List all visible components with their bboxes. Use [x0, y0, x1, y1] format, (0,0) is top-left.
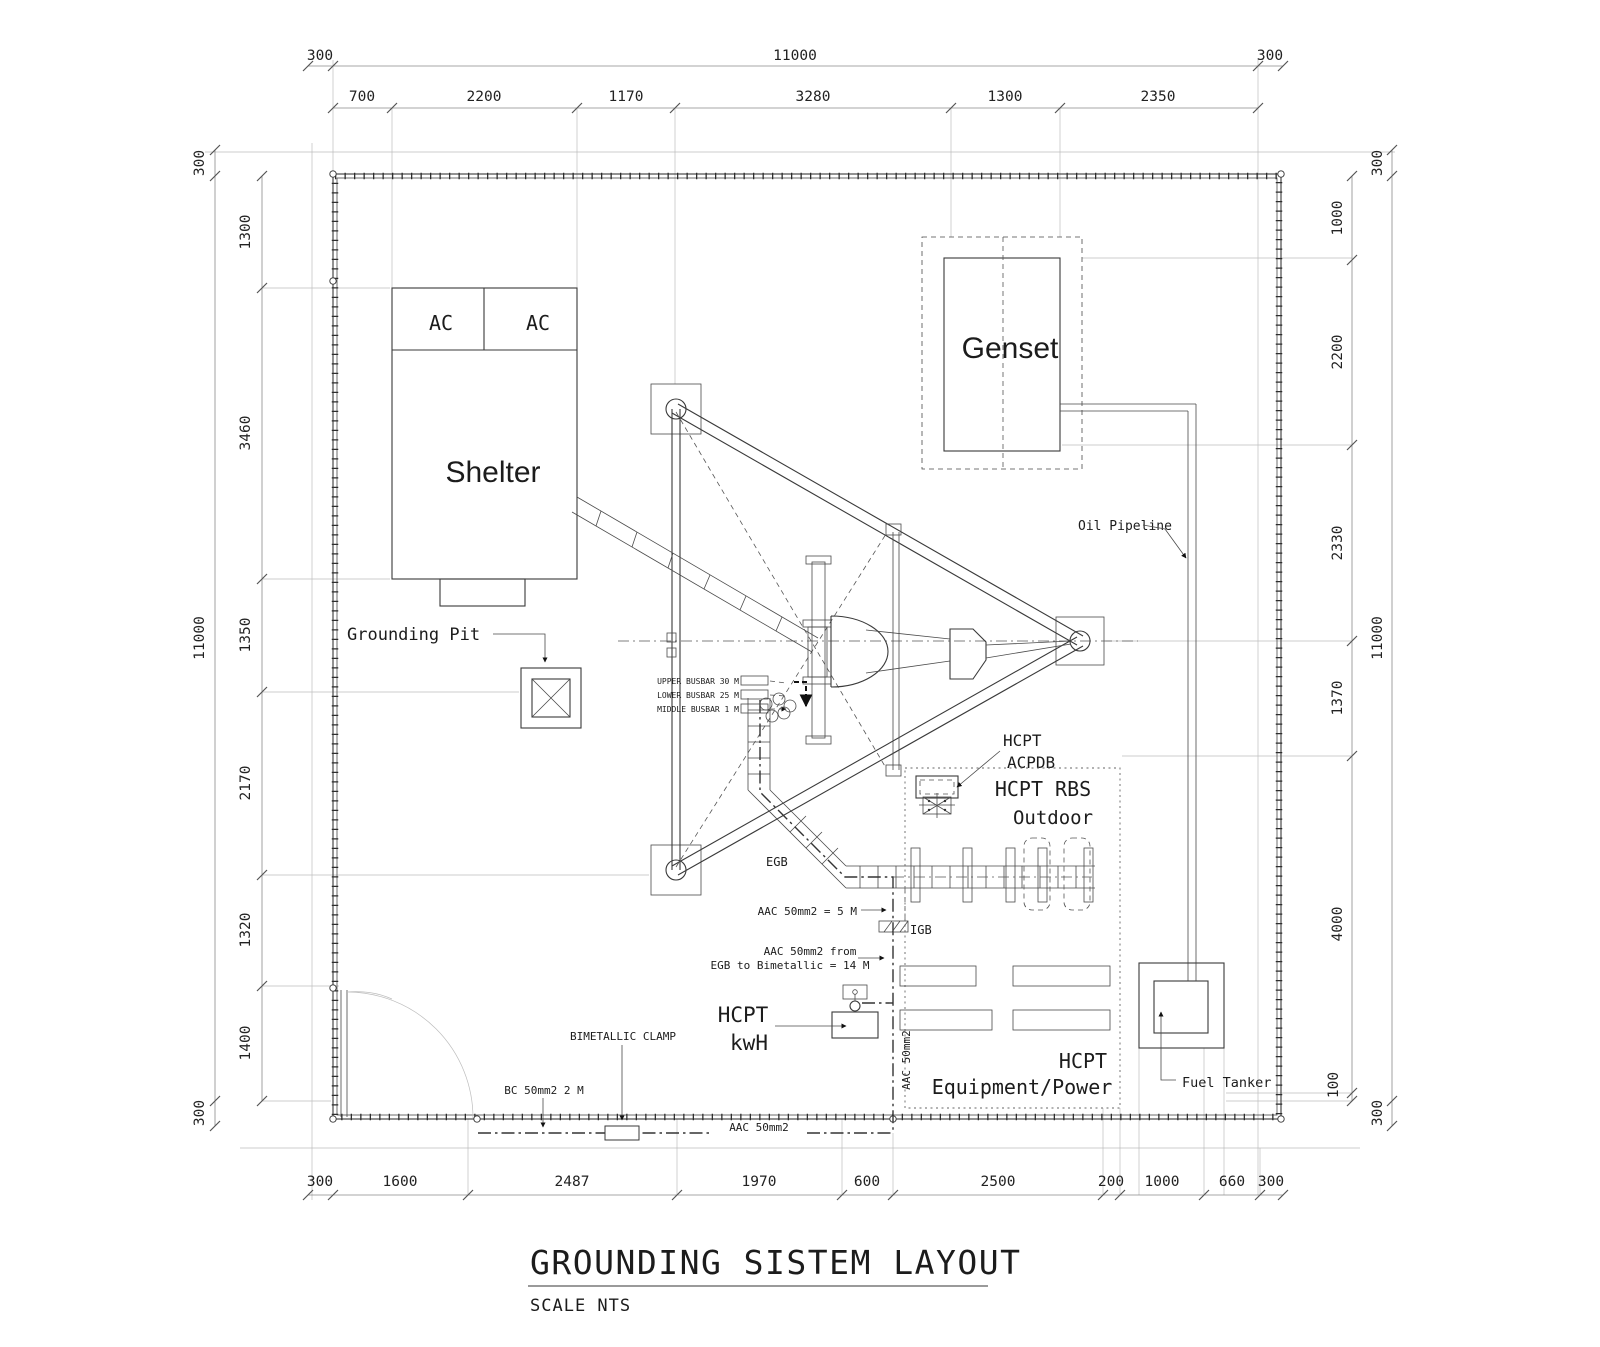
busbar-lower-label: LOWER BUSBAR 25 M	[657, 691, 739, 700]
dim-right-inner-2: 2200	[1330, 335, 1346, 370]
dim-top-outer-2: 11000	[773, 48, 817, 64]
dim-right-outer-2: 11000	[1370, 616, 1386, 660]
oil-pipeline-label: Oil Pipeline	[1078, 519, 1172, 534]
kwh-label-line2: kwH	[730, 1031, 768, 1055]
dim-bottom-6: 2500	[981, 1174, 1016, 1190]
busbar-upper-label: UPPER BUSBAR 30 M	[657, 677, 739, 686]
dim-bottom-9: 660	[1219, 1174, 1245, 1190]
genset-label: Genset	[962, 332, 1059, 365]
dim-bottom-3: 2487	[555, 1174, 590, 1190]
dim-right-inner-1: 1000	[1330, 201, 1346, 236]
shelter-label: Shelter	[445, 456, 540, 489]
diagonal-cable-ladder	[572, 497, 818, 652]
dim-top-outer-3: 300	[1257, 48, 1283, 64]
cable-cleats	[760, 693, 796, 722]
dim-top-inner-3: 1170	[609, 89, 644, 105]
drawing-title: GROUNDING SISTEM LAYOUT	[530, 1243, 1021, 1282]
egb-label: EGB	[766, 855, 788, 869]
aac-from-note-line2: EGB to Bimetallic = 14 M	[711, 959, 870, 972]
fence-posts	[330, 171, 1284, 1122]
dim-top-inner-6: 2350	[1141, 89, 1176, 105]
rbs-label-line1: HCPT RBS	[995, 777, 1091, 801]
dim-right-inner-5: 4000	[1330, 907, 1346, 942]
title-block: GROUNDING SISTEM LAYOUT SCALE NTS	[528, 1243, 1021, 1316]
acpdb-label-line2: ACPDB	[1007, 753, 1055, 772]
dim-top-inner-2: 2200	[467, 89, 502, 105]
dim-left-inner-6: 1400	[238, 1026, 254, 1061]
dim-right-inner-6: 100	[1326, 1072, 1342, 1098]
kwh-label-line1: HCPT	[718, 1003, 769, 1027]
dim-bottom-1: 300	[307, 1174, 333, 1190]
cable-ladders	[572, 497, 1095, 910]
tower-inner-frame	[806, 524, 901, 776]
vertical-cable-ladder	[748, 698, 846, 888]
dim-bottom-5: 600	[854, 1174, 880, 1190]
dim-top-inner-4: 3280	[796, 89, 831, 105]
dim-right-inner-3: 2330	[1330, 526, 1346, 561]
grounding-pit: Grounding Pit	[347, 625, 581, 728]
equipment-label-line2: Equipment/Power	[932, 1075, 1113, 1099]
oil-pipeline: Oil Pipeline	[1060, 404, 1196, 981]
rbs-label-line2: Outdoor	[1013, 807, 1093, 829]
dim-bottom-8: 1000	[1145, 1174, 1180, 1190]
equipment-plinths	[900, 966, 1110, 1030]
dim-bottom-7: 200	[1098, 1174, 1124, 1190]
dim-right-outer-1: 300	[1370, 150, 1386, 176]
shelter-building: AC AC Shelter	[392, 288, 577, 606]
dim-bottom-4: 1970	[742, 1174, 777, 1190]
dim-right-inner-4: 1370	[1330, 681, 1346, 716]
ac-unit-left-label: AC	[429, 311, 453, 335]
busbar-callouts: UPPER BUSBAR 30 M LOWER BUSBAR 25 M MIDD…	[657, 676, 796, 722]
igb-label: IGB	[910, 923, 932, 937]
fuel-tanker: Fuel Tanker	[1139, 963, 1271, 1091]
aac-vertical-label: AAC 50mm2	[900, 1030, 913, 1090]
dim-right-outer-3: 300	[1370, 1100, 1386, 1126]
busbar-middle-label: MIDDLE BUSBAR 1 M	[657, 705, 739, 714]
dim-bottom-2: 1600	[383, 1174, 418, 1190]
equipment-label-line1: HCPT	[1059, 1049, 1107, 1073]
bimetallic-clamp-label: BIMETALLIC CLAMP	[570, 1030, 676, 1043]
aac-5m-note: AAC 50mm2 = 5 M	[758, 905, 858, 918]
dim-left-inner-1: 1300	[238, 215, 254, 250]
dim-top-outer-1: 300	[307, 48, 333, 64]
bc-50mm2-label: BC 50mm2 2 M	[504, 1084, 584, 1097]
dim-left-inner-3: 1350	[238, 618, 254, 653]
dim-bottom-10: 300	[1258, 1174, 1284, 1190]
grounding-pit-label: Grounding Pit	[347, 625, 480, 645]
ac-unit-right-label: AC	[526, 311, 550, 335]
perimeter-fence	[330, 171, 1284, 1122]
dim-left-outer-3: 300	[192, 1100, 208, 1126]
dim-left-inner-5: 1320	[238, 913, 254, 948]
fuel-tanker-label: Fuel Tanker	[1182, 1075, 1271, 1091]
genset: Genset	[922, 237, 1082, 469]
dim-left-outer-2: 11000	[192, 616, 208, 660]
dimension-texts: 300 11000 300 700 2200 1170 3280 1300 23…	[192, 48, 1386, 1190]
kwh-meter-group: HCPT kwH IGB EGB AAC 50mm2 = 5 M AAC 50m…	[711, 855, 932, 1055]
dim-top-inner-1: 700	[349, 89, 375, 105]
hcpt-acpdb: HCPT ACPDB	[916, 731, 1055, 818]
dim-left-inner-4: 2170	[238, 766, 254, 801]
hcpt-rbs-outdoor-area: HCPT RBS Outdoor HCPT Equipment/Power AA…	[900, 768, 1120, 1108]
dim-top-inner-5: 1300	[988, 89, 1023, 105]
drawing-scale: SCALE NTS	[530, 1296, 631, 1316]
acpdb-label-line1: HCPT	[1003, 731, 1042, 750]
grounding-system-layout-drawing: 300 11000 300 700 2200 1170 3280 1300 23…	[0, 0, 1600, 1347]
aac-from-note-line1: AAC 50mm2 from	[764, 945, 857, 958]
dim-left-outer-1: 300	[192, 150, 208, 176]
drawing-canvas: 300 11000 300 700 2200 1170 3280 1300 23…	[0, 0, 1600, 1347]
gate	[341, 990, 473, 1118]
antenna-mount	[803, 616, 1071, 687]
aac-bottom-label: AAC 50mm2	[729, 1121, 789, 1134]
dim-left-inner-2: 3460	[238, 416, 254, 451]
horizontal-cable-ladder	[846, 838, 1095, 910]
